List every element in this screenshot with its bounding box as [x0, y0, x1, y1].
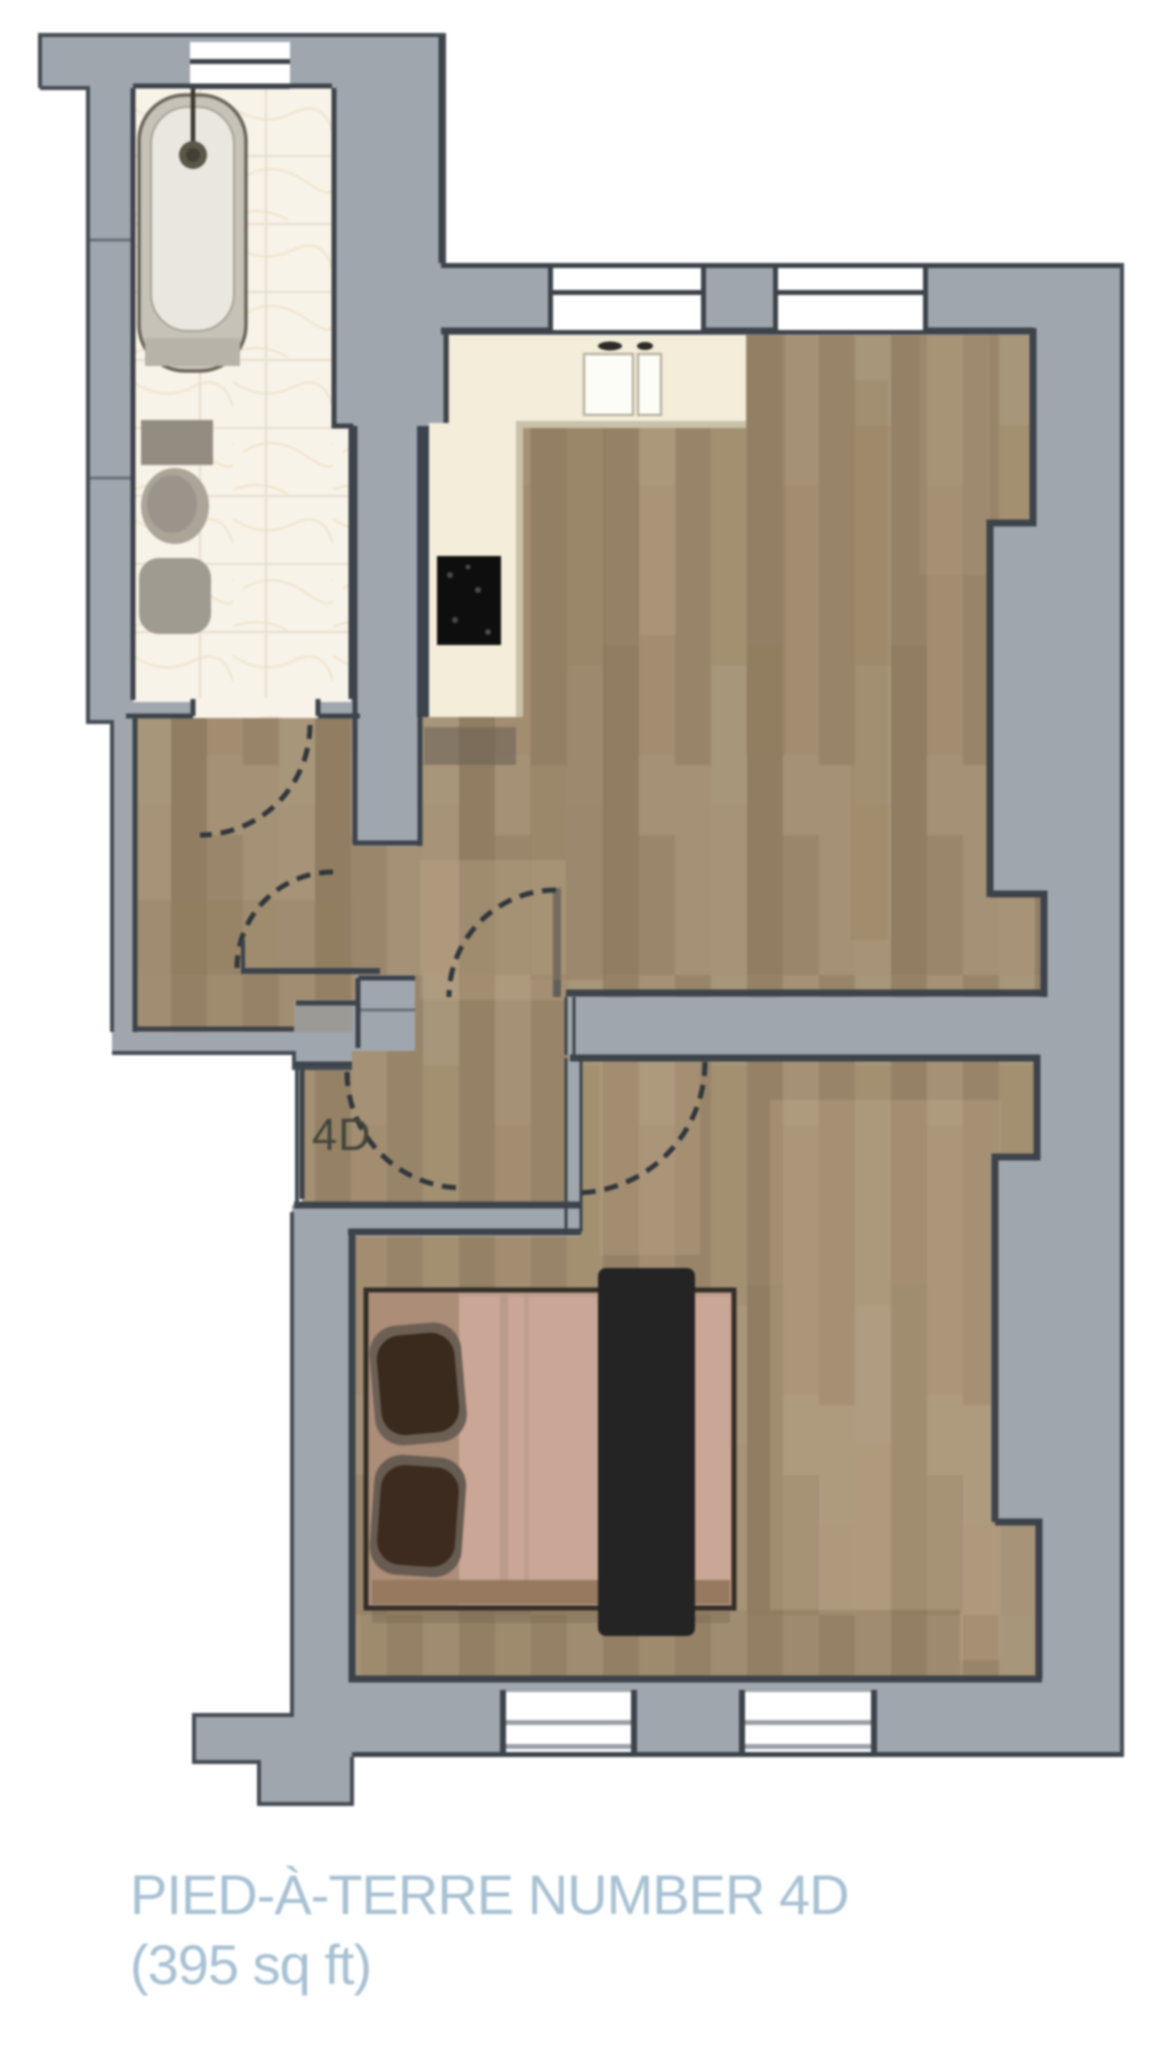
svg-text:4D: 4D: [312, 1109, 372, 1160]
